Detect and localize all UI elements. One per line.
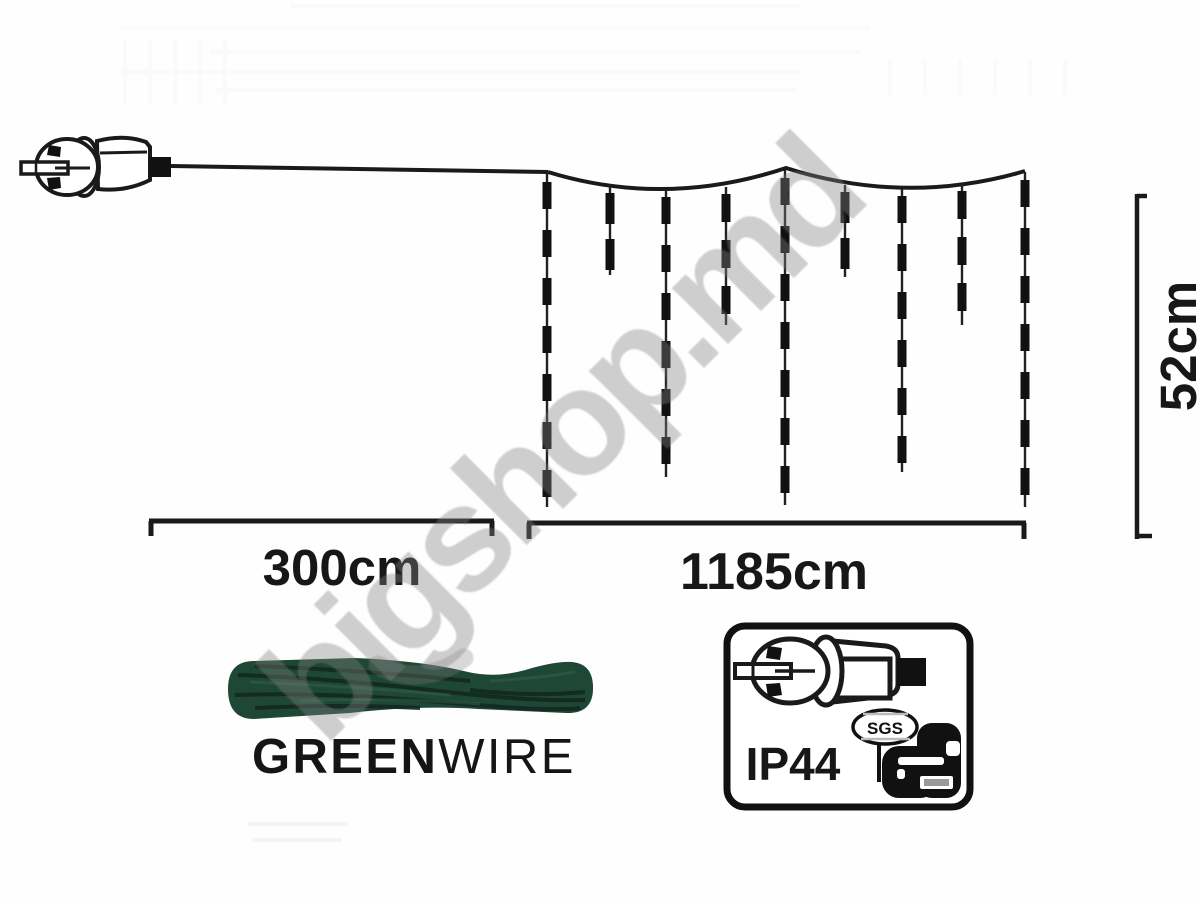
svg-text:52cm: 52cm [1150, 281, 1200, 411]
svg-text:IP44: IP44 [746, 738, 841, 790]
svg-text:GREENWIRE: GREENWIRE [252, 730, 576, 784]
svg-text:SGS: SGS [867, 719, 903, 738]
svg-text:1185cm: 1185cm [680, 543, 868, 601]
